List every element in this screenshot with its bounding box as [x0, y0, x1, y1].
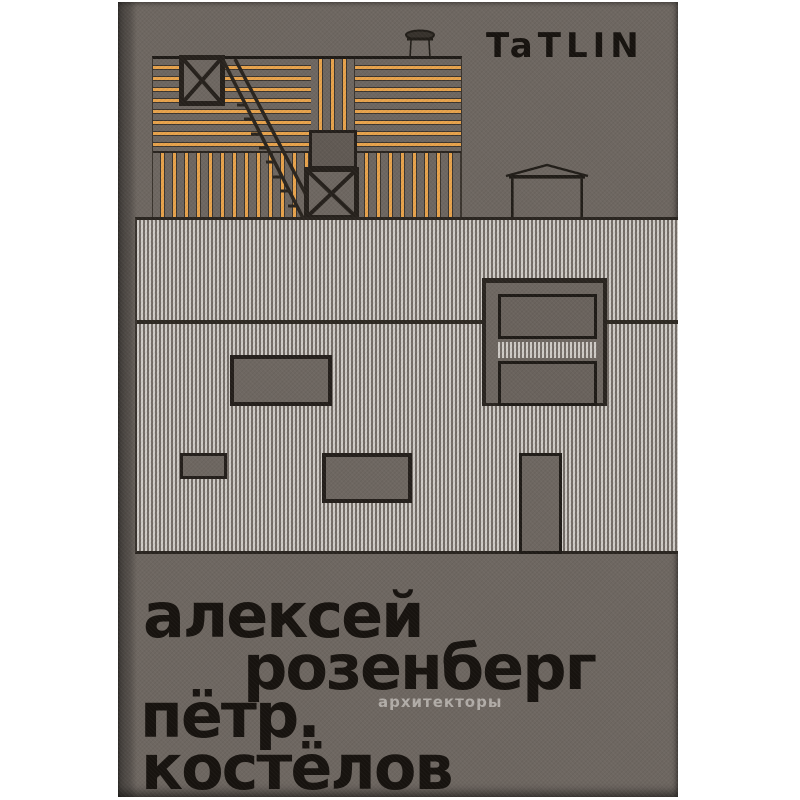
- book-cover-photo: TaTLIN: [0, 0, 800, 800]
- window-cross-icon: [309, 172, 354, 215]
- panel-window-top: [498, 294, 597, 339]
- crossed-window-lower-middle: [304, 167, 359, 220]
- window-bottom-middle: [322, 453, 412, 503]
- entry-door: [519, 453, 562, 554]
- right-window-panel: [482, 278, 607, 406]
- corrugated-main-hall: [135, 217, 678, 554]
- rooftop-water-tank: [503, 161, 591, 219]
- roof-vent-pipe: [400, 28, 440, 60]
- panel-corrugated-strip: [498, 342, 597, 358]
- book-cover: TaTLIN: [118, 2, 678, 797]
- publisher-logo: TaTLIN: [486, 29, 644, 63]
- plain-window-middle: [309, 130, 357, 169]
- author-name-line-4: костёлов: [141, 737, 452, 799]
- window-left-middle: [230, 355, 332, 406]
- window-small-left: [180, 453, 227, 479]
- panel-window-bottom: [498, 361, 597, 406]
- upper-wooden-cabin: [152, 56, 462, 217]
- subtitle-label: архитекторы: [378, 693, 502, 711]
